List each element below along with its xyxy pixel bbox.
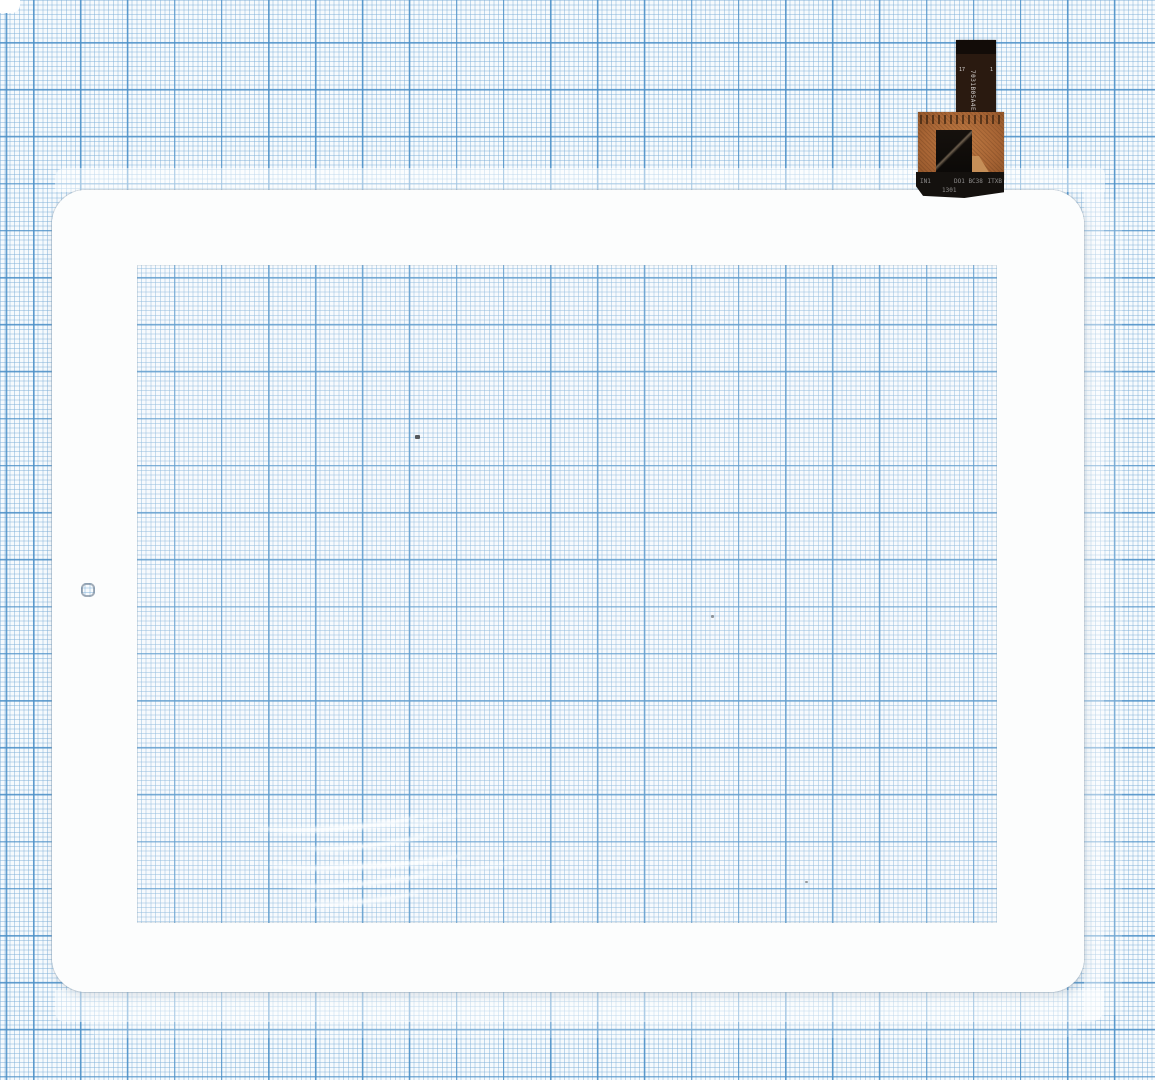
ribbon-mark: 17 bbox=[959, 67, 965, 73]
bonding-strip-mark: IN1 bbox=[920, 178, 931, 185]
panel-bonding-strip: IN1 DO1 BC38 ITXB 1301 bbox=[916, 172, 1004, 198]
protective-film-bottom bbox=[55, 990, 1104, 1022]
protective-film-bottom-outer bbox=[90, 1020, 1080, 1038]
dust-speck bbox=[805, 881, 808, 883]
flex-solder-pads bbox=[920, 115, 1002, 124]
panel-frame-top bbox=[52, 190, 1084, 265]
bonding-strip-mark: 1301 bbox=[942, 187, 956, 194]
ribbon-mark: 1 bbox=[990, 67, 993, 73]
protective-film-right bbox=[1084, 190, 1104, 1020]
graph-paper-background: { "meta": { "alt": "White tablet touchsc… bbox=[0, 0, 1155, 1080]
dust-speck bbox=[711, 615, 714, 618]
paper-corner-notch bbox=[0, 0, 20, 13]
touch-controller-chip bbox=[936, 130, 972, 174]
flex-ribbon-cable: 17 1 7031B05A4E12 bbox=[956, 40, 996, 118]
bonding-strip-mark: DO1 BC38 bbox=[954, 178, 983, 185]
panel-frame-bottom bbox=[52, 923, 1084, 992]
protective-film-right-outer bbox=[1104, 200, 1122, 1015]
camera-hole bbox=[81, 583, 95, 597]
bonding-strip-mark: ITXB bbox=[988, 178, 1002, 185]
ribbon-part-number-text: 7031B05A4E12 bbox=[969, 70, 976, 116]
digitizer-panel bbox=[52, 190, 1084, 992]
panel-frame-right bbox=[997, 190, 1084, 992]
dust-speck bbox=[415, 435, 420, 439]
